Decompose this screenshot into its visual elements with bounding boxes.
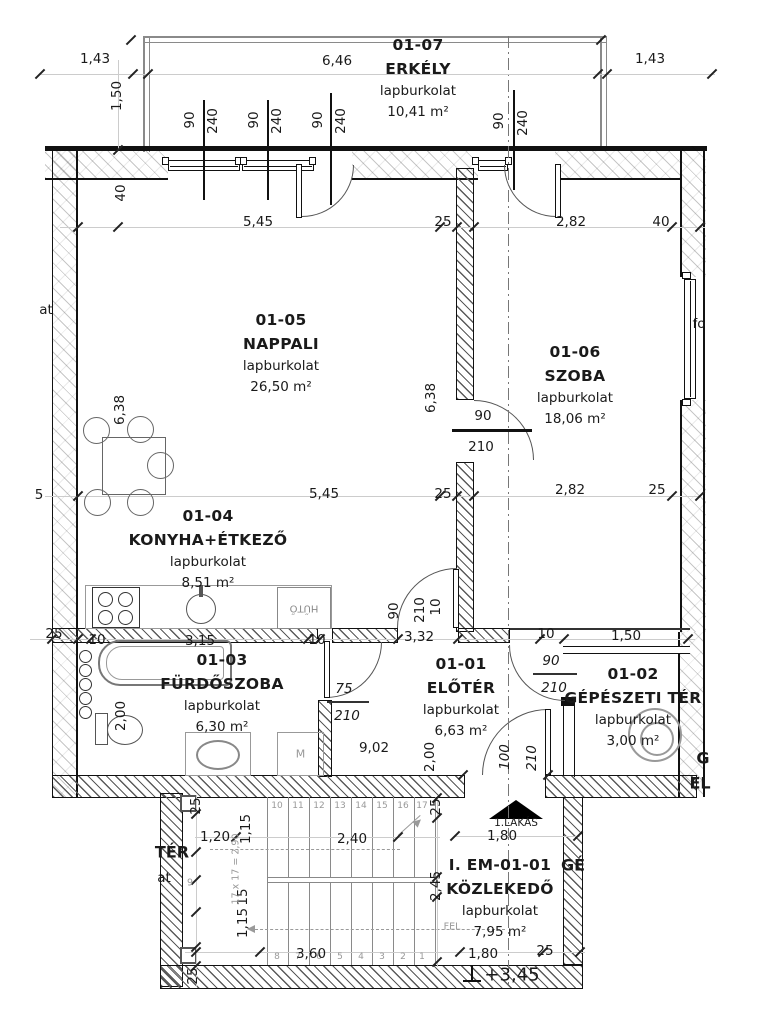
- dimension-label: 240: [515, 110, 531, 136]
- room-code: 01-01: [423, 652, 499, 676]
- dimension-line: [60, 227, 705, 228]
- dimension-label: 90: [474, 408, 491, 424]
- dimension-label: 1,43: [80, 51, 110, 67]
- dimension-label: FEL: [444, 922, 461, 933]
- room-name: ELŐTÉR: [423, 676, 499, 700]
- dining-table: [102, 437, 166, 495]
- dimension-label: 210: [524, 745, 540, 771]
- dimension-label: 25: [434, 214, 451, 230]
- dimension-label: 90: [182, 111, 198, 128]
- room-finish: lapburkolat: [160, 696, 284, 717]
- dimension-label: 90: [310, 111, 326, 128]
- stair-step-number: 8: [274, 952, 280, 962]
- dimension-label: 90: [246, 111, 262, 128]
- dimension-label: 210: [541, 680, 567, 696]
- dimension-label: 5,45: [309, 486, 339, 502]
- dimension-label: 240: [269, 108, 285, 134]
- radiator-segment: [79, 650, 92, 663]
- level-marker-icon: [471, 966, 473, 980]
- room-code: 01-04: [129, 504, 288, 528]
- dimension-label: 1,80: [468, 946, 498, 962]
- stair-step-number: 10: [271, 801, 282, 811]
- dimension-label: 1,50: [611, 628, 641, 644]
- dimension-label: 90: [491, 112, 507, 129]
- dimension-label: 1,43: [635, 51, 665, 67]
- dimension-label: 25: [648, 482, 665, 498]
- stove-burner: [118, 592, 133, 607]
- wall-right-outer-edge: [703, 146, 705, 797]
- dimension-label: 3,60: [296, 946, 326, 962]
- radiator-segment: [79, 678, 92, 691]
- room-label-konyha: 01-04 KONYHA+ÉTKEZŐ lapburkolat 8,51 m²: [129, 504, 288, 594]
- dimension-label: 240: [333, 108, 349, 134]
- stair-step-number: 14: [355, 801, 366, 811]
- dimension-label: 10: [308, 632, 325, 648]
- dimension-line: [455, 836, 580, 837]
- wall-top-segment: [555, 151, 680, 180]
- wall-horizontal: [332, 628, 398, 643]
- balcony-rail-left: [143, 36, 150, 152]
- room-area: 26,50 m²: [243, 377, 319, 398]
- dimension-label: at: [39, 302, 53, 318]
- dimension-label: 17 x 17 = 2,90: [231, 834, 242, 905]
- dimension-label: +3,45: [484, 965, 539, 986]
- room-name: SZOBA: [537, 364, 613, 388]
- dimension-label: 25: [428, 798, 444, 815]
- window-frame-end: [162, 157, 169, 165]
- dimension-line: [185, 952, 585, 953]
- wall-bottom-right: [545, 775, 697, 798]
- dimension-line: [40, 74, 715, 75]
- room-name: KÖZLEKEDŐ: [446, 877, 554, 901]
- window-frame-end: [682, 399, 691, 406]
- room-label-nappali: 01-05 NAPPALI lapburkolat 26,50 m²: [243, 308, 319, 398]
- room-area: 3,00 m²: [565, 731, 702, 752]
- door-arc-balcony-living: [302, 165, 354, 217]
- window-right-wall: [684, 279, 696, 399]
- dimension-label: 1,20: [200, 829, 230, 845]
- dimension-label: 2,82: [555, 482, 585, 498]
- room-label-furdoszoba: 01-03 FÜRDŐSZOBA lapburkolat 6,30 m²: [160, 648, 284, 738]
- window-axis: [513, 90, 515, 190]
- wall-divider-upper: [456, 168, 474, 400]
- dimension-tick: [126, 35, 137, 46]
- stair-step-number: 12: [313, 801, 324, 811]
- dimension-label: at: [157, 870, 171, 886]
- dimension-label: 90: [542, 653, 559, 669]
- room-label-eloter: 01-01 ELŐTÉR lapburkolat 6,63 m²: [423, 652, 499, 742]
- dimension-label: 25: [536, 943, 553, 959]
- dimension-label: 90: [386, 602, 402, 619]
- room-finish: lapburkolat: [446, 901, 554, 922]
- window-frame-end: [240, 157, 247, 165]
- stove-burner: [98, 592, 113, 607]
- stair-step-number: 5: [337, 952, 343, 962]
- kitchen-sink: [186, 594, 216, 624]
- door-leaf-entry: [545, 709, 551, 775]
- stove-burner: [98, 610, 113, 625]
- room-label-erkely: 01-07 ERKÉLY lapburkolat 10,41 m²: [380, 33, 456, 123]
- dimension-label: 40: [113, 184, 129, 201]
- room-code: 01-07: [380, 33, 456, 57]
- room-finish: lapburkolat: [423, 700, 499, 721]
- door-dim-line-bathroom: [327, 701, 369, 703]
- dimension-label: 6,38: [112, 395, 128, 425]
- dimension-label: 240: [205, 108, 221, 134]
- washing-machine-label: M: [296, 748, 306, 761]
- room-label-kozlekedo: I. EM-01-01 KÖZLEKEDŐ lapburkolat 7,95 m…: [446, 853, 554, 943]
- dimension-label: 3,32: [404, 629, 434, 645]
- dimension-label: 2,00: [113, 701, 129, 731]
- dimension-label: 2,00: [422, 742, 438, 772]
- room-finish: lapburkolat: [537, 388, 613, 409]
- stair-step-number: 1: [419, 952, 425, 962]
- balcony-rail-right: [600, 36, 607, 147]
- window-frame-end: [682, 272, 691, 279]
- dimension-label: 9,02: [359, 740, 389, 756]
- dimension-label: 6,38: [423, 383, 439, 413]
- door-arc-bathroom: [326, 642, 382, 698]
- dimension-label: 10: [537, 626, 554, 642]
- door-leaf-bedroom: [452, 429, 532, 432]
- room-name: NAPPALI: [243, 332, 319, 356]
- dimension-label: TÉR: [155, 843, 189, 862]
- fridge-label: HŰTŐ: [290, 603, 319, 614]
- dimension-label: fo: [692, 316, 705, 332]
- stair-step-number: 11: [292, 801, 303, 811]
- window-frame-end: [472, 157, 479, 165]
- door-leaf-hall: [453, 569, 459, 628]
- dimension-label: 210: [468, 439, 494, 455]
- dimension-label: 25: [45, 626, 62, 642]
- room-area: 10,41 m²: [380, 102, 456, 123]
- stair-step-number: 3: [379, 952, 385, 962]
- radiator-segment: [79, 692, 92, 705]
- room-name: FÜRDŐSZOBA: [160, 672, 284, 696]
- stair-step-number: 13: [334, 801, 345, 811]
- wall-utility-top: [563, 646, 690, 654]
- door-leaf-balcony-living: [296, 164, 302, 218]
- dimension-label: 3,15: [185, 633, 215, 649]
- radiator-segment: [79, 664, 92, 677]
- room-name: KONYHA+ÉTKEZŐ: [129, 528, 288, 552]
- balcony-rail-top: [143, 36, 607, 43]
- floor-plan: HŰTŐ M 01-07 ERKÉLY lapburkolat 10,41 m²…: [0, 0, 761, 1023]
- stair-step-number: 15: [376, 801, 387, 811]
- room-name: GÉPÉSZETI TÉR: [565, 686, 702, 710]
- door-leaf-balcony-bedroom: [555, 164, 561, 218]
- dimension-label: 75: [335, 681, 352, 697]
- dimension-label: 25: [188, 797, 204, 814]
- dimension-label: 10: [88, 632, 105, 648]
- dimension-label: 10: [428, 598, 444, 615]
- dimension-label: 1,15: [235, 908, 251, 938]
- dimension-label: 2,45: [428, 871, 444, 901]
- door-arc-balcony-bedroom: [504, 165, 556, 217]
- dimension-label: EL: [689, 774, 710, 793]
- room-label-szoba: 01-06 SZOBA lapburkolat 18,06 m²: [537, 340, 613, 430]
- room-area: 8,51 m²: [129, 573, 288, 594]
- stair-step-number: 17: [416, 801, 427, 811]
- door-leaf-bathroom: [324, 641, 330, 698]
- room-code: I. EM-01-01: [446, 853, 554, 877]
- dimension-label: 40: [652, 214, 669, 230]
- dimension-label: 9: [187, 878, 193, 889]
- room-finish: lapburkolat: [380, 81, 456, 102]
- dimension-label: GÉ: [561, 856, 585, 875]
- room-name: ERKÉLY: [380, 57, 456, 81]
- dimension-label: 210: [412, 597, 428, 623]
- room-finish: lapburkolat: [243, 356, 319, 377]
- dimension-label: 5: [35, 487, 44, 503]
- level-marker-icon: [463, 980, 481, 982]
- wall-bottom-left: [52, 775, 465, 798]
- dimension-label: 2,40: [337, 831, 367, 847]
- radiator-segment: [79, 706, 92, 719]
- dimension-label: 6,46: [322, 53, 352, 69]
- room-code: 01-06: [537, 340, 613, 364]
- room-code: 01-03: [160, 648, 284, 672]
- room-finish: lapburkolat: [565, 710, 702, 731]
- dimension-label: 25: [185, 967, 201, 984]
- wall-horizontal: [458, 628, 510, 643]
- room-code: 01-05: [243, 308, 319, 332]
- dimension-line: [196, 795, 197, 987]
- stair-step-number: 2: [400, 952, 406, 962]
- room-area: 6,30 m²: [160, 717, 284, 738]
- dimension-label: 25: [434, 486, 451, 502]
- dimension-label: 1,50: [109, 81, 125, 111]
- dimension-label: G: [696, 749, 709, 768]
- washing-machine: M: [277, 732, 324, 776]
- stove-burner: [118, 610, 133, 625]
- stair-mid-rail: [267, 877, 437, 883]
- room-area: 6,63 m²: [423, 721, 499, 742]
- dimension-label: 2,82: [556, 214, 586, 230]
- stair-step-number: 4: [358, 952, 364, 962]
- room-area: 7,95 m²: [446, 922, 554, 943]
- room-label-gepeszeti: 01-02 GÉPÉSZETI TÉR lapburkolat 3,00 m²: [565, 662, 702, 752]
- washbasin: [196, 740, 240, 770]
- wall-left: [52, 151, 78, 798]
- stair-step-number: 16: [397, 801, 408, 811]
- dimension-label: 5,45: [243, 214, 273, 230]
- dimension-label: 100: [497, 744, 513, 770]
- window-axis: [330, 93, 332, 205]
- dimension-label: 1,80: [487, 828, 517, 844]
- room-area: 18,06 m²: [537, 409, 613, 430]
- room-code: 01-02: [565, 662, 702, 686]
- corridor-wall-right: [563, 797, 583, 965]
- dimension-label: 210: [334, 708, 360, 724]
- window-frame-end: [309, 157, 316, 165]
- room-finish: lapburkolat: [129, 552, 288, 573]
